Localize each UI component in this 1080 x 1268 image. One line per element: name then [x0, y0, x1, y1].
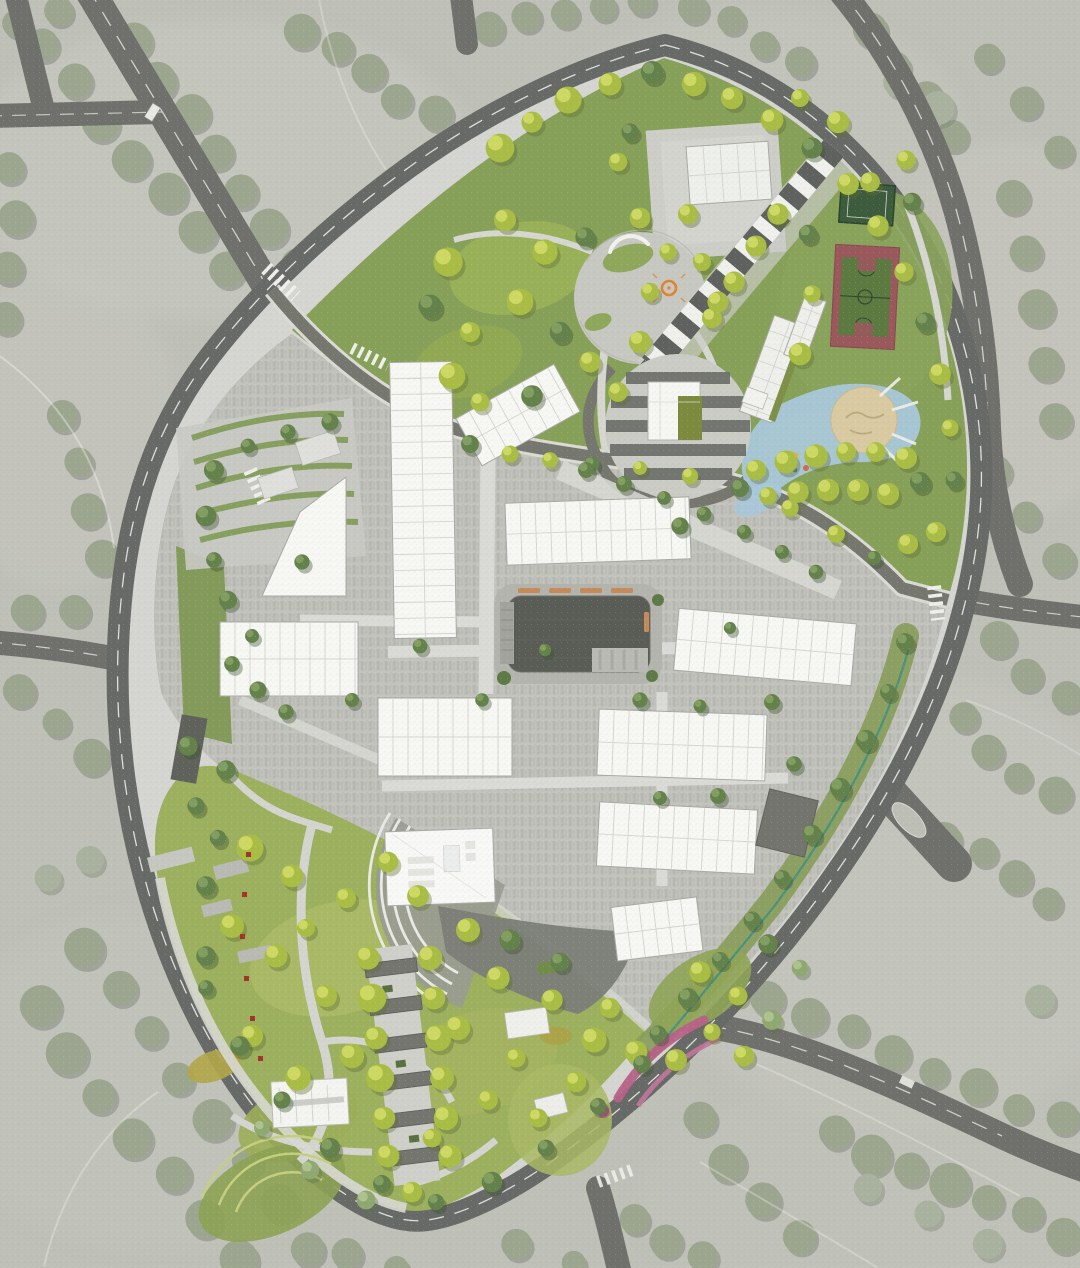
site-plan-svg: Residential community master plan - aeri… — [0, 0, 1080, 1268]
texture-grain — [0, 0, 1080, 1268]
plan-layers — [0, 0, 1080, 1268]
grain-overlay — [0, 0, 1080, 1268]
masterplan-canvas: Residential community master plan - aeri… — [0, 0, 1080, 1268]
